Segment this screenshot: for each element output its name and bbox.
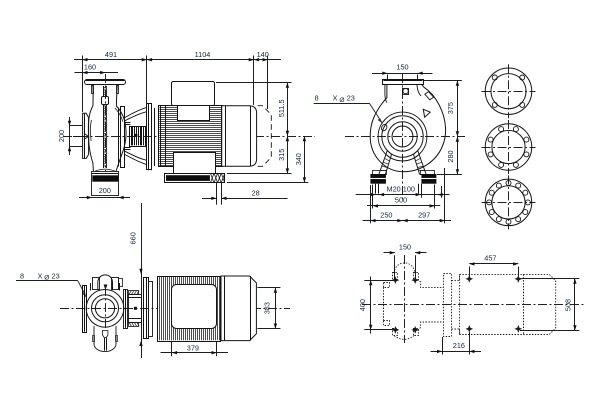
svg-text:511.5: 511.5	[277, 99, 286, 117]
svg-text:160: 160	[84, 62, 96, 71]
svg-text:8: 8	[20, 271, 24, 280]
svg-text:457: 457	[484, 254, 496, 263]
svg-text:216: 216	[453, 341, 465, 350]
svg-text:23: 23	[52, 271, 60, 280]
svg-text:400: 400	[358, 299, 367, 311]
svg-text:23: 23	[347, 94, 355, 103]
svg-text:250: 250	[380, 210, 392, 219]
svg-text:383: 383	[263, 302, 272, 314]
svg-text:491: 491	[105, 50, 117, 59]
svg-text:M20: M20	[386, 185, 400, 194]
svg-text:500: 500	[395, 196, 407, 205]
svg-text:280: 280	[446, 150, 455, 162]
svg-text:28: 28	[252, 189, 260, 198]
svg-text:375: 375	[446, 102, 455, 114]
svg-text:508: 508	[563, 299, 572, 311]
svg-text:297: 297	[418, 210, 430, 219]
svg-text:140: 140	[257, 50, 269, 59]
svg-text:660: 660	[128, 232, 137, 244]
svg-text:315: 315	[277, 149, 286, 161]
svg-text:200: 200	[99, 186, 111, 195]
svg-text:150: 150	[396, 62, 408, 71]
svg-text:1104: 1104	[195, 50, 211, 59]
svg-text:Ø: Ø	[339, 97, 344, 104]
svg-text:X: X	[333, 94, 338, 103]
svg-text:200: 200	[57, 130, 66, 142]
svg-text:150: 150	[399, 242, 411, 251]
svg-text:340: 340	[294, 153, 303, 165]
svg-text:8: 8	[315, 94, 319, 103]
svg-text:X: X	[38, 271, 43, 280]
svg-text:379: 379	[187, 343, 199, 352]
svg-text:100: 100	[403, 185, 415, 194]
